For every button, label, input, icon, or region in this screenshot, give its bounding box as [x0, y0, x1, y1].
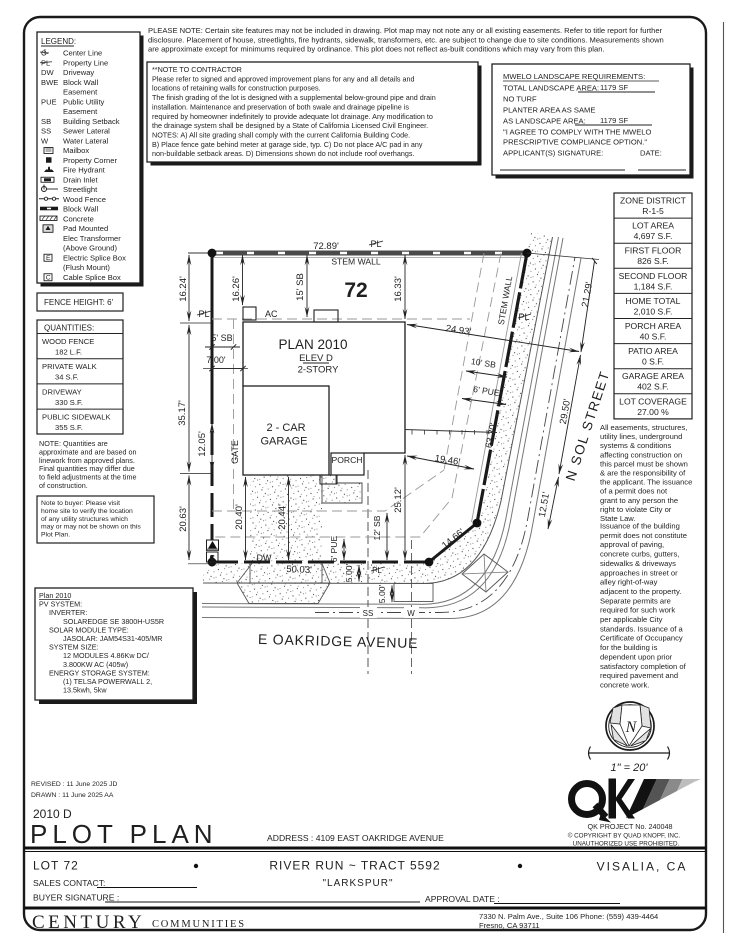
svg-text:alley right-of-way: alley right-of-way: [600, 578, 658, 587]
svg-text:the applicant. The issuance: the applicant. The issuance: [600, 478, 692, 487]
svg-text:FIRST FLOOR: FIRST FLOOR: [625, 246, 682, 256]
svg-text:DW: DW: [257, 553, 272, 563]
svg-text:permit does not constitute: permit does not constitute: [600, 531, 687, 540]
svg-text:Pad Mounted: Pad Mounted: [63, 224, 108, 233]
svg-text:DW: DW: [41, 68, 54, 77]
svg-text:Cable Splice Box: Cable Splice Box: [63, 273, 121, 282]
svg-text:PATIO AREA: PATIO AREA: [628, 346, 678, 356]
svg-text:1,184 S.F.: 1,184 S.F.: [634, 281, 673, 291]
svg-text:of a permit does not: of a permit does not: [600, 487, 668, 496]
svg-text:C: C: [46, 274, 51, 281]
svg-text:RIVER RUN ~ TRACT 5592: RIVER RUN ~ TRACT 5592: [269, 859, 440, 873]
svg-text:All easements, structures,: All easements, structures,: [600, 423, 687, 432]
svg-text:systems & conditions: systems & conditions: [600, 441, 672, 450]
svg-text:NO TURF: NO TURF: [503, 95, 537, 104]
svg-text:LOT COVERAGE: LOT COVERAGE: [619, 396, 687, 406]
svg-text:© COPYRIGHT BY QUAD KNOPF, I: © COPYRIGHT BY QUAD KNOPF, INC.: [568, 832, 681, 840]
svg-text:7.00': 7.00': [206, 355, 226, 365]
svg-text:LEGEND:: LEGEND:: [41, 37, 76, 46]
svg-text:locations of retaining walls f: locations of retaining walls for constru…: [152, 84, 321, 93]
svg-text:40 S.F.: 40 S.F.: [640, 332, 667, 342]
svg-text:Note to buyer: Please visit: Note to buyer: Please visit: [41, 500, 120, 507]
svg-text:ZONE DISTRICT: ZONE DISTRICT: [620, 196, 687, 206]
svg-text:5.00': 5.00': [377, 584, 387, 603]
svg-text:Separate permits are: Separate permits are: [600, 596, 671, 605]
svg-text:utility lines, underground: utility lines, underground: [600, 432, 682, 441]
svg-text:1179 SF: 1179 SF: [600, 83, 629, 92]
svg-text:TOTAL LANDSCAPE AREA:: TOTAL LANDSCAPE AREA:: [503, 84, 599, 93]
svg-text:DRAWN : 11 June 2025 AA: DRAWN : 11 June 2025 AA: [31, 792, 114, 799]
svg-text:SS: SS: [41, 127, 51, 136]
svg-text:affecting construction on: affecting construction on: [600, 450, 682, 459]
svg-text:required pavement and: required pavement and: [600, 671, 678, 680]
svg-text:HOME TOTAL: HOME TOTAL: [626, 296, 681, 306]
svg-text:home site to verify the locati: home site to verify the location: [41, 508, 133, 515]
svg-text:QK PROJECT No. 240048: QK PROJECT No. 240048: [588, 822, 673, 831]
svg-text:Certificate of Occupancy: Certificate of Occupancy: [600, 634, 683, 643]
svg-text:Electric Splice Box: Electric Splice Box: [63, 253, 126, 262]
svg-text:B) Place fence gate behind met: B) Place fence gate behind meter at gara…: [152, 140, 423, 149]
svg-text:Water Lateral: Water Lateral: [63, 136, 109, 145]
svg-text:2,010 S.F.: 2,010 S.F.: [634, 306, 673, 316]
svg-text:1" = 20': 1" = 20': [611, 762, 649, 774]
svg-text:ADDRESS : 4109 EAST OAKRIDGE: ADDRESS : 4109 EAST OAKRIDGE AVENUE: [267, 833, 444, 843]
svg-text:SECOND FLOOR: SECOND FLOOR: [619, 271, 688, 281]
svg-text:Fire Hydrant: Fire Hydrant: [63, 166, 106, 175]
svg-text:C: C: [210, 553, 216, 562]
svg-text:REVISED : 11 June 2025 JD: REVISED : 11 June 2025 JD: [31, 781, 117, 788]
svg-text:concrete curbs, gutters,: concrete curbs, gutters,: [600, 550, 679, 559]
svg-text:Public Utility: Public Utility: [63, 97, 105, 106]
svg-text:the drainage system shall be d: the drainage system shall be designed by…: [152, 121, 428, 130]
svg-text:Mailbox: Mailbox: [63, 146, 89, 155]
svg-text:182 L.F.: 182 L.F.: [55, 348, 82, 357]
svg-text:29.50': 29.50': [558, 398, 573, 425]
svg-text:Block Wall: Block Wall: [63, 78, 98, 87]
svg-text:12' SB: 12' SB: [372, 515, 382, 540]
svg-text:Plot Plan.: Plot Plan.: [41, 532, 70, 539]
svg-text:LOT 72: LOT 72: [33, 859, 79, 873]
svg-text:16.24': 16.24': [178, 276, 189, 302]
svg-text:L: L: [44, 47, 48, 56]
svg-text:L: L: [46, 58, 50, 67]
svg-text:W: W: [41, 136, 49, 145]
svg-text:Driveway: Driveway: [63, 68, 94, 77]
svg-text:4,697 S.F.: 4,697 S.F.: [634, 231, 673, 241]
svg-text:5.00': 5.00': [344, 563, 354, 582]
svg-text:SS: SS: [363, 609, 374, 618]
svg-text:adjacent to the property.: adjacent to the property.: [600, 587, 681, 596]
svg-text:PLEASE NOTE: Certain site fea: PLEASE NOTE: Certain site features may n…: [148, 26, 663, 35]
svg-text:per applicable City: per applicable City: [600, 615, 663, 624]
svg-text:**NOTE TO CONTRACTOR: **NOTE TO CONTRACTOR: [152, 65, 242, 74]
svg-text:Property Corner: Property Corner: [63, 156, 117, 165]
svg-text:PRIVATE WALK: PRIVATE WALK: [42, 362, 97, 371]
svg-text:sidewalks & driveways: sidewalks & driveways: [600, 559, 676, 568]
svg-text:34 S.F.: 34 S.F.: [55, 373, 79, 382]
svg-text:"I AGREE TO COMPLY WITH THE MW: "I AGREE TO COMPLY WITH THE MWELO: [503, 128, 652, 137]
svg-text:right to violate City or: right to violate City or: [600, 505, 672, 514]
svg-text:AS LANDSCAPE AREA:: AS LANDSCAPE AREA:: [503, 117, 586, 126]
svg-text:may or may not be shown on thi: may or may not be shown on this: [41, 524, 141, 531]
svg-text:UNAUTHORIZED USE PROHIBITED.: UNAUTHORIZED USE PROHIBITED.: [573, 841, 680, 848]
svg-text:Concrete: Concrete: [63, 214, 94, 223]
svg-text:satisfactory completion of: satisfactory completion of: [600, 662, 687, 671]
svg-text:MWELO LANDSCAPE REQUIREMENTS:: MWELO LANDSCAPE REQUIREMENTS:: [503, 72, 645, 81]
svg-text:E: E: [46, 255, 51, 262]
svg-text:Wood Fence: Wood Fence: [63, 195, 106, 204]
svg-text:AC: AC: [265, 309, 278, 319]
svg-text:required for such work: required for such work: [600, 606, 675, 615]
svg-text:BUYER SIGNATURE :: BUYER SIGNATURE :: [33, 893, 119, 903]
svg-text:DATE:: DATE:: [640, 149, 662, 158]
svg-text:20.44': 20.44': [277, 504, 288, 530]
svg-text:6' PUE: 6' PUE: [329, 535, 339, 562]
svg-text:for the building is: for the building is: [600, 643, 658, 652]
svg-text:of construction.: of construction.: [39, 481, 88, 490]
svg-text:QUANTITIES:: QUANTITIES:: [44, 324, 94, 333]
svg-text:CENTURY: CENTURY: [32, 912, 145, 933]
svg-text:330 S.F.: 330 S.F.: [55, 398, 83, 407]
svg-text:of any utility structures whic: of any utility structures which: [41, 516, 128, 523]
svg-text:required by homeowner indefini: required by homeowner indefinitely to pr…: [152, 112, 433, 121]
svg-text:Easement: Easement: [63, 88, 98, 97]
svg-text:PLANTER AREA AS SAME: PLANTER AREA AS SAME: [503, 106, 595, 115]
svg-text:5' SB: 5' SB: [211, 333, 232, 343]
svg-text:27.00 %: 27.00 %: [637, 407, 669, 417]
svg-text:25.12': 25.12': [393, 487, 404, 513]
svg-text:FENCE HEIGHT: 6': FENCE HEIGHT: 6': [44, 298, 114, 307]
svg-text:16.33': 16.33': [393, 276, 404, 302]
svg-text:15' SB: 15' SB: [295, 273, 306, 301]
svg-text:are approximate except for min: are approximate except for minimums requ…: [148, 45, 605, 54]
svg-text:approaches in street or: approaches in street or: [600, 568, 678, 577]
svg-text:PUBLIC SIDEWALK: PUBLIC SIDEWALK: [42, 413, 111, 422]
svg-text:16.26': 16.26': [231, 276, 242, 302]
svg-text:1179 SF: 1179 SF: [600, 116, 629, 125]
svg-text:NOTES: A) All site grading sh: NOTES: A) All site grading shall comply …: [152, 130, 410, 139]
svg-text:STEM WALL: STEM WALL: [331, 257, 381, 267]
svg-text:Fresno, CA 93711: Fresno, CA 93711: [479, 921, 540, 930]
svg-text:DRIVEWAY: DRIVEWAY: [42, 387, 82, 396]
svg-text:LOT AREA: LOT AREA: [632, 221, 674, 231]
svg-text:Property Line: Property Line: [63, 58, 108, 67]
svg-text:Block Wall: Block Wall: [63, 205, 98, 214]
svg-text:GATE: GATE: [230, 440, 240, 464]
svg-text:PRESCRIPTIVE COMPLIANCE OPTION: PRESCRIPTIVE COMPLIANCE OPTION.": [503, 138, 647, 147]
svg-text:PORCH AREA: PORCH AREA: [625, 321, 682, 331]
svg-text:12.51': 12.51': [537, 491, 552, 518]
svg-text:BWE: BWE: [41, 78, 58, 87]
svg-text:(Above Ground): (Above Ground): [63, 244, 117, 253]
svg-text:PLAN 2010: PLAN 2010: [278, 337, 347, 352]
svg-text:W: W: [407, 609, 415, 618]
svg-text:Drain Inlet: Drain Inlet: [63, 175, 98, 184]
svg-text:13.5kwh, 5kw: 13.5kwh, 5kw: [63, 686, 107, 695]
svg-text:STEM WALL: STEM WALL: [496, 275, 514, 326]
svg-text:35.17': 35.17': [177, 400, 188, 426]
svg-text:ELEV D: ELEV D: [299, 353, 333, 364]
svg-text:Elec Transformer: Elec Transformer: [63, 234, 121, 243]
svg-text:0 S.F.: 0 S.F.: [642, 357, 664, 367]
svg-text:dependent upon prior: dependent upon prior: [600, 652, 673, 661]
svg-text:SALES CONTACT:: SALES CONTACT:: [33, 878, 105, 888]
svg-text:50.03': 50.03': [286, 564, 312, 576]
svg-text:disclosure. Placement of hous: disclosure. Placement of house, streetli…: [148, 35, 664, 44]
svg-text:Easement: Easement: [63, 107, 98, 116]
svg-text:APPROVAL DATE :: APPROVAL DATE :: [425, 894, 500, 904]
svg-text:(Flush Mount): (Flush Mount): [63, 263, 110, 272]
svg-text:non-buildable setback areas.: non-buildable setback areas. D) Dimensio…: [152, 149, 415, 158]
svg-text:GARAGE: GARAGE: [260, 436, 307, 448]
svg-text:PUE: PUE: [41, 97, 57, 106]
svg-text:2-STORY: 2-STORY: [298, 365, 339, 376]
svg-text:Building Setback: Building Setback: [63, 117, 120, 126]
svg-text:standards. Issuance of a: standards. Issuance of a: [600, 624, 684, 633]
svg-text:WOOD FENCE: WOOD FENCE: [42, 337, 94, 346]
svg-text:COMMUNITIES: COMMUNITIES: [152, 919, 246, 930]
svg-text:Please refer to signed and app: Please refer to signed and approved impr…: [152, 74, 415, 83]
svg-text:21.29': 21.29': [580, 281, 595, 308]
svg-text:"LARKSPUR": "LARKSPUR": [322, 878, 393, 889]
svg-text:20.63': 20.63': [178, 506, 189, 532]
svg-text:10' SB: 10' SB: [470, 356, 497, 370]
svg-text:Center Line: Center Line: [63, 49, 102, 58]
svg-text:402 S.F.: 402 S.F.: [637, 382, 669, 392]
svg-text:The finish grading of the lot: The finish grading of the lot is designe…: [152, 93, 436, 102]
svg-text:12.05': 12.05': [197, 431, 208, 457]
svg-text:Sewer Lateral: Sewer Lateral: [63, 127, 110, 136]
svg-text:& are the responsibility of: & are the responsibility of: [600, 469, 686, 478]
svg-text:72: 72: [344, 279, 367, 302]
svg-text:PORCH: PORCH: [331, 455, 362, 465]
svg-text:72.89': 72.89': [313, 241, 339, 252]
svg-text:N: N: [625, 719, 638, 736]
svg-text:approval of paving,: approval of paving,: [600, 540, 664, 549]
svg-text:24.93': 24.93': [445, 323, 472, 338]
svg-text:APPLICANT(S) SIGNATURE:: APPLICANT(S) SIGNATURE:: [503, 149, 603, 158]
svg-text:VISALIA, CA: VISALIA, CA: [597, 860, 688, 874]
svg-text:19.46': 19.46': [434, 453, 461, 468]
svg-text:E OAKRIDGE AVENUE: E OAKRIDGE AVENUE: [258, 631, 419, 651]
svg-text:PLOT PLAN: PLOT PLAN: [30, 819, 218, 849]
svg-text:2 - CAR: 2 - CAR: [266, 422, 305, 434]
svg-text:7330 N. Palm Ave., Suite 106: 7330 N. Palm Ave., Suite 106 Phone: (559…: [479, 912, 658, 921]
svg-text:R-1-5: R-1-5: [642, 206, 664, 216]
svg-text:826 S.F.: 826 S.F.: [637, 256, 669, 266]
svg-text:this parcel must be shown: this parcel must be shown: [600, 459, 688, 468]
svg-text:installation. Maintenance and: installation. Maintenance and preservati…: [152, 102, 409, 111]
svg-text:Issuance of the building: Issuance of the building: [600, 522, 680, 531]
svg-text:grant to any person the: grant to any person the: [600, 496, 678, 505]
svg-text:GARAGE AREA: GARAGE AREA: [622, 371, 684, 381]
svg-text:concrete work.: concrete work.: [600, 680, 649, 689]
svg-text:355 S.F.: 355 S.F.: [55, 423, 83, 432]
svg-text:20.40': 20.40': [234, 504, 245, 530]
svg-text:SB: SB: [41, 117, 51, 126]
svg-text:Streetlight: Streetlight: [63, 185, 98, 194]
